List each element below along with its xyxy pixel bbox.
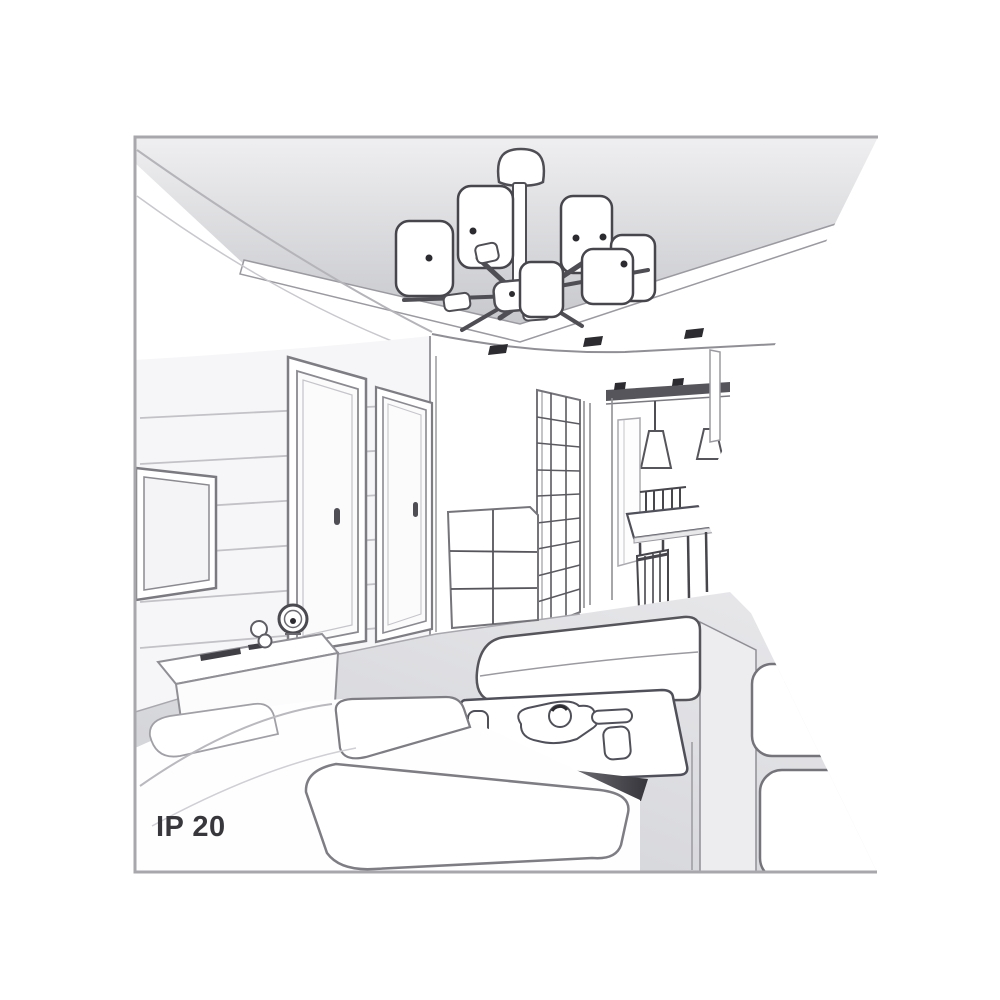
tv-screen bbox=[144, 477, 209, 590]
spotlight bbox=[583, 336, 603, 347]
product-context-illustration: IP 20 bbox=[0, 0, 1000, 1000]
spotlight bbox=[488, 344, 508, 355]
right-sofa bbox=[752, 664, 900, 880]
table-cup bbox=[603, 726, 632, 760]
chandelier-shade bbox=[520, 262, 563, 317]
door-handle bbox=[413, 502, 418, 517]
ceiling-vent bbox=[672, 378, 684, 386]
pendant-cone-shade bbox=[641, 431, 671, 468]
ceiling-vent bbox=[614, 382, 626, 390]
chandelier-shade bbox=[396, 221, 453, 296]
mid-sofa-side bbox=[700, 622, 756, 872]
door-leaf bbox=[383, 397, 426, 633]
right-sofa-cushion bbox=[760, 770, 900, 880]
table-dish bbox=[592, 709, 633, 724]
lamp-socket bbox=[443, 292, 471, 311]
wardrobe-grid bbox=[537, 390, 580, 629]
doors bbox=[288, 356, 436, 654]
wall-clock bbox=[279, 605, 307, 634]
shade-dot bbox=[470, 228, 477, 235]
dining-chair-front bbox=[637, 550, 668, 610]
hall-doorway bbox=[584, 398, 612, 608]
wall-top-line bbox=[432, 334, 778, 352]
wardrobe-body bbox=[537, 390, 580, 629]
hall-column bbox=[710, 350, 720, 442]
drawer-unit bbox=[448, 507, 538, 628]
back-window bbox=[618, 418, 640, 566]
ip-rating-label: IP 20 bbox=[156, 811, 226, 843]
door-handle bbox=[334, 508, 340, 525]
door-leaf bbox=[297, 371, 358, 644]
shade-dot bbox=[573, 235, 580, 242]
hallway bbox=[537, 350, 730, 629]
lamp-socket bbox=[474, 242, 499, 264]
spotlight bbox=[684, 328, 704, 339]
shade-dot bbox=[600, 234, 607, 241]
room-line-art: IP 20 bbox=[0, 0, 1000, 1000]
shade-dot bbox=[621, 261, 628, 268]
chandelier-canopy bbox=[498, 149, 544, 186]
door-right bbox=[376, 387, 432, 642]
right-sofa-armrest bbox=[752, 664, 892, 756]
chandelier-shade bbox=[582, 249, 633, 304]
shade-dot bbox=[426, 255, 433, 262]
pendant-light bbox=[641, 401, 671, 468]
tv bbox=[136, 468, 216, 600]
hub-detail-dot bbox=[509, 291, 515, 297]
clock-center bbox=[290, 618, 296, 624]
